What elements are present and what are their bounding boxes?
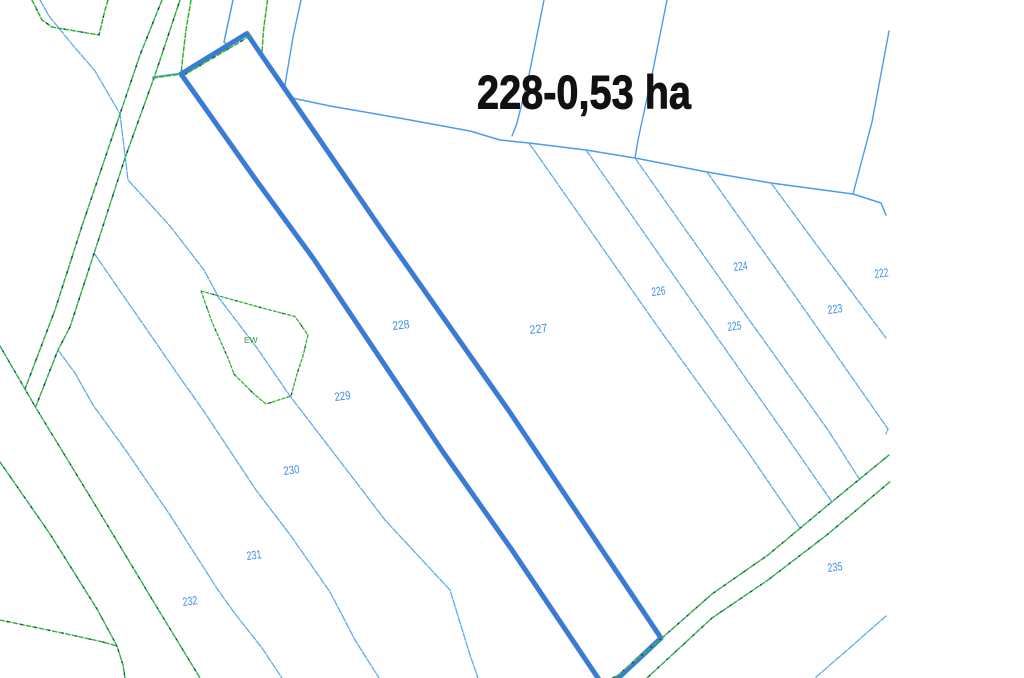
- svg-text:224: 224: [733, 258, 749, 274]
- svg-text:232: 232: [182, 593, 199, 609]
- svg-text:227: 227: [529, 321, 549, 337]
- svg-text:222: 222: [874, 265, 890, 281]
- svg-text:229: 229: [334, 388, 352, 404]
- svg-text:230: 230: [283, 462, 301, 478]
- svg-text:228: 228: [392, 317, 411, 333]
- svg-text:228-0,53 ha: 228-0,53 ha: [477, 66, 692, 119]
- svg-text:231: 231: [246, 547, 263, 563]
- svg-text:EW: EW: [244, 335, 258, 345]
- svg-text:226: 226: [651, 283, 667, 299]
- svg-text:235: 235: [827, 559, 844, 575]
- svg-text:223: 223: [827, 301, 844, 317]
- svg-text:225: 225: [727, 318, 743, 334]
